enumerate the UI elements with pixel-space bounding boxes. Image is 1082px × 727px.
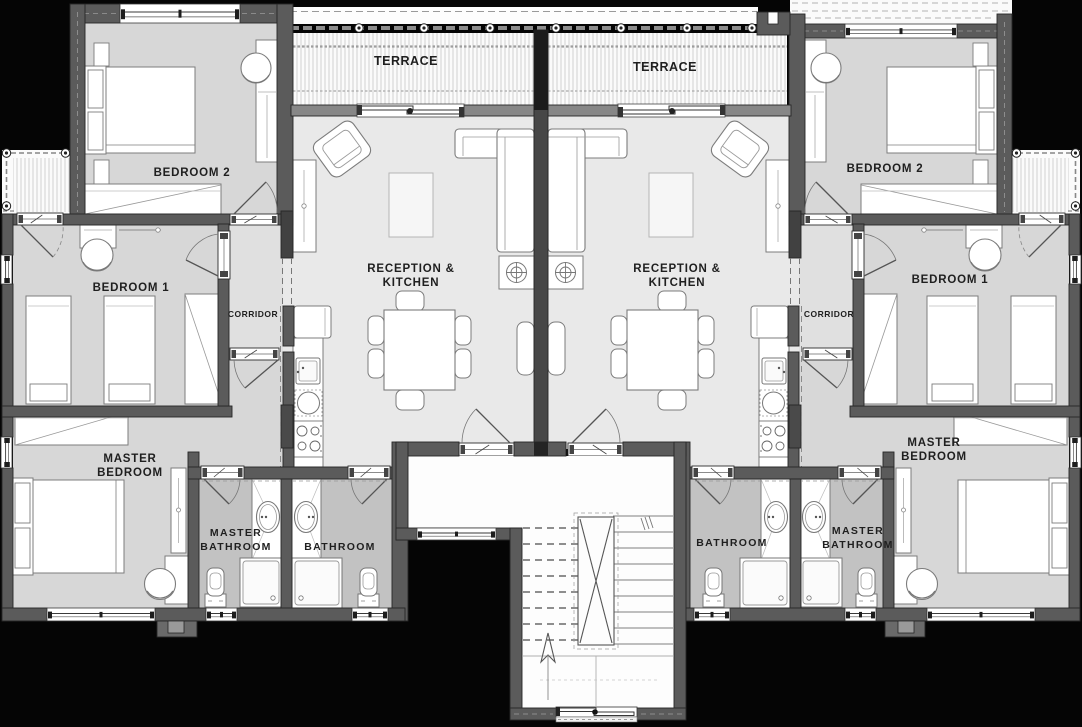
svg-text:TERRACE: TERRACE: [374, 54, 438, 68]
svg-text:MASTER: MASTER: [103, 453, 156, 465]
svg-text:BEDROOM 1: BEDROOM 1: [912, 274, 989, 286]
svg-text:BEDROOM 2: BEDROOM 2: [154, 167, 231, 179]
svg-text:RECEPTION &: RECEPTION &: [367, 263, 454, 275]
svg-text:BEDROOM: BEDROOM: [97, 467, 163, 479]
svg-text:KITCHEN: KITCHEN: [649, 277, 706, 289]
svg-text:BATHROOM: BATHROOM: [304, 541, 375, 553]
svg-text:BEDROOM 1: BEDROOM 1: [93, 282, 170, 294]
svg-text:CORRIDOR: CORRIDOR: [804, 309, 854, 319]
svg-text:CORRIDOR: CORRIDOR: [228, 309, 278, 319]
svg-text:BEDROOM 2: BEDROOM 2: [847, 163, 924, 175]
svg-text:BATHROOM: BATHROOM: [696, 537, 767, 549]
svg-text:BEDROOM: BEDROOM: [901, 451, 967, 463]
svg-text:RECEPTION &: RECEPTION &: [633, 263, 720, 275]
svg-text:MASTER: MASTER: [832, 525, 884, 537]
svg-text:BATHROOM: BATHROOM: [200, 541, 271, 553]
svg-text:MASTER: MASTER: [907, 437, 960, 449]
svg-text:TERRACE: TERRACE: [633, 60, 697, 74]
svg-text:KITCHEN: KITCHEN: [383, 277, 440, 289]
svg-text:MASTER: MASTER: [210, 527, 262, 539]
svg-text:BATHROOM: BATHROOM: [822, 539, 893, 551]
